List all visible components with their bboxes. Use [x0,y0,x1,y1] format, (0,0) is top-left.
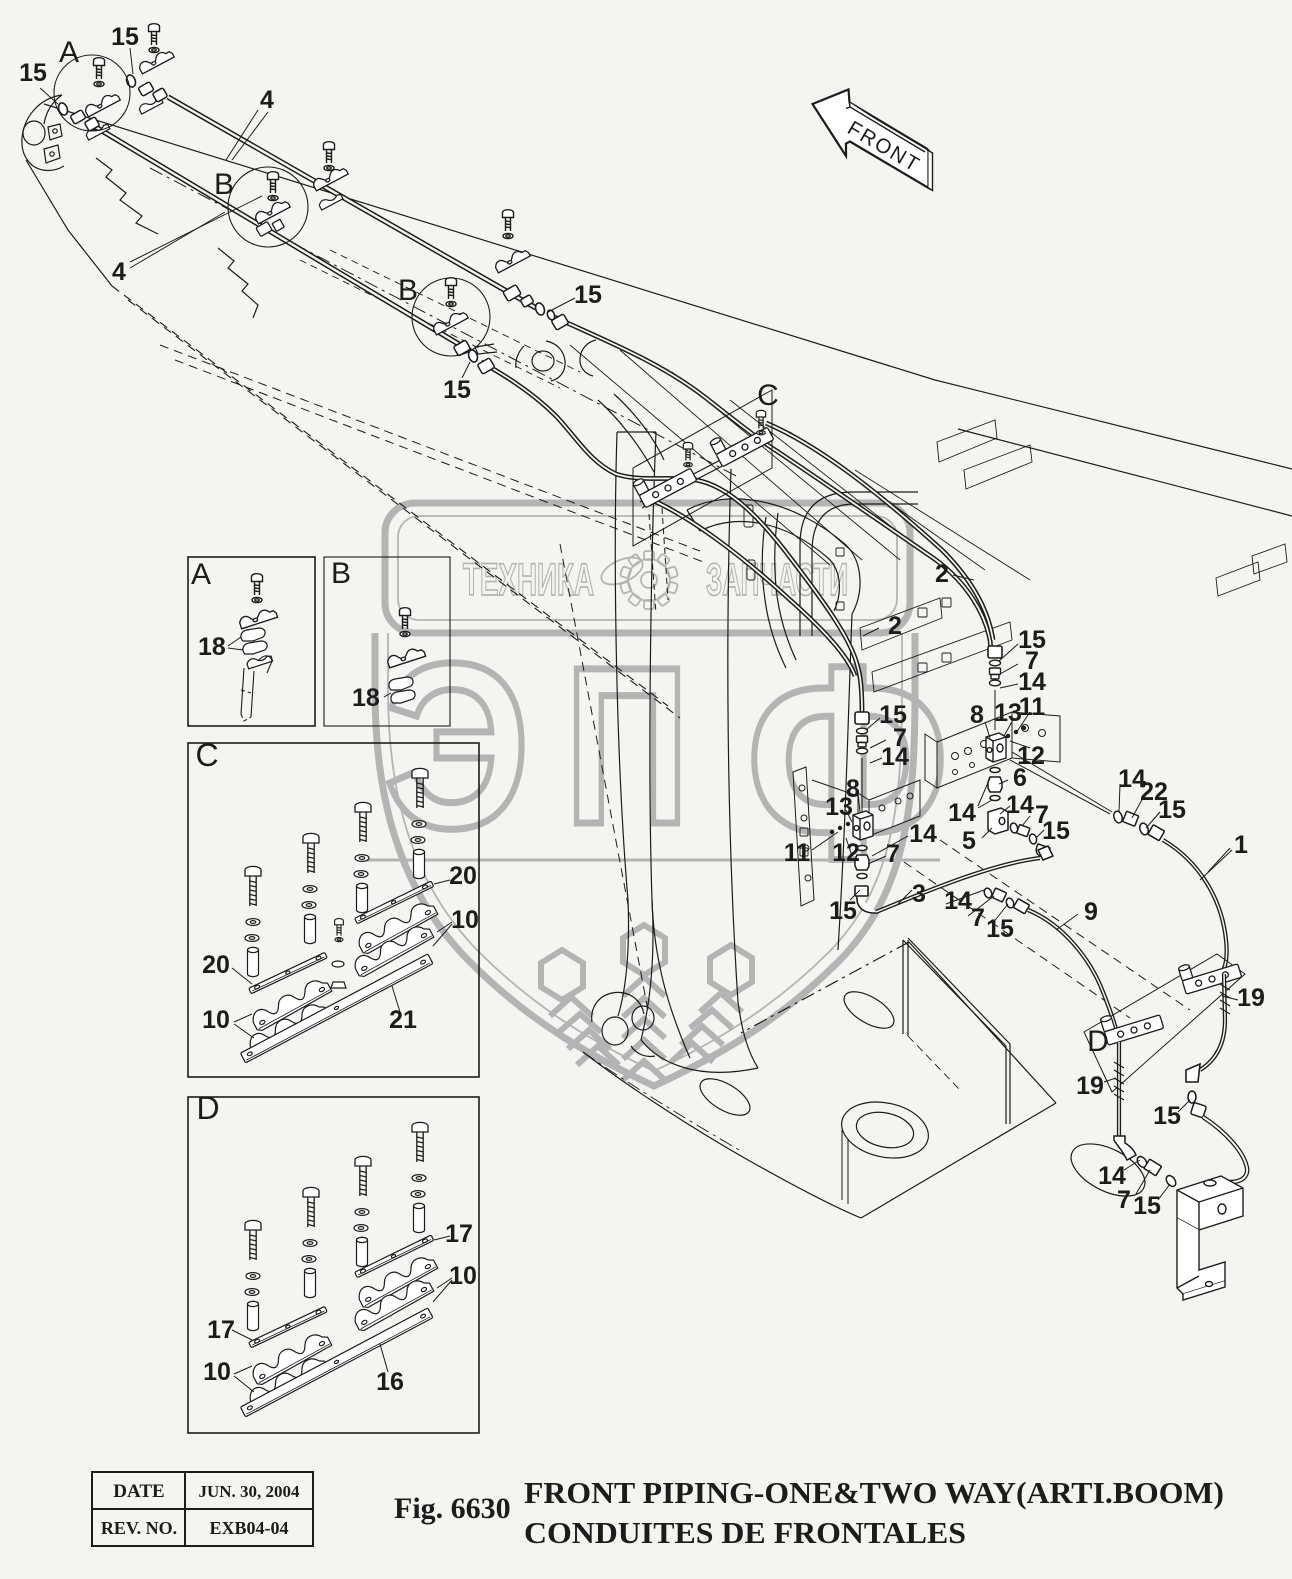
svg-text:13: 13 [994,699,1022,727]
svg-text:14: 14 [1018,668,1046,696]
svg-text:B: B [398,274,418,307]
svg-text:15: 15 [574,281,602,309]
svg-text:14: 14 [909,820,937,848]
svg-text:12: 12 [832,839,860,867]
svg-text:14: 14 [881,743,909,771]
svg-text:15: 15 [829,897,857,925]
svg-text:B: B [214,168,234,201]
svg-text:2: 2 [935,560,949,588]
svg-text:ТЕХНИКА: ТЕХНИКА [463,554,594,605]
svg-text:15: 15 [1133,1192,1161,1220]
svg-text:5: 5 [962,827,976,855]
svg-text:B: B [331,557,351,590]
svg-text:10: 10 [449,1262,477,1290]
svg-text:4: 4 [112,258,126,286]
svg-text:20: 20 [202,951,230,979]
svg-text:D: D [196,1090,219,1126]
svg-text:11: 11 [1019,693,1046,721]
svg-text:2: 2 [888,612,902,640]
svg-text:D: D [1087,1025,1109,1058]
svg-text:10: 10 [451,906,479,934]
svg-text:18: 18 [198,633,226,661]
svg-text:REV. NO.: REV. NO. [101,1518,177,1538]
svg-text:19: 19 [1076,1072,1104,1100]
svg-text:A: A [191,558,211,591]
svg-text:A: A [59,36,79,69]
svg-text:4: 4 [260,86,274,114]
svg-text:Э: Э [384,614,530,877]
svg-text:1: 1 [1234,831,1248,859]
svg-text:C: C [757,379,779,412]
svg-text:7: 7 [886,840,900,868]
svg-text:10: 10 [202,1006,230,1034]
svg-text:21: 21 [389,1006,417,1034]
svg-text:15: 15 [1153,1102,1181,1130]
svg-text:DATE: DATE [113,1481,164,1502]
svg-text:18: 18 [352,684,380,712]
svg-text:11: 11 [784,839,811,867]
svg-text:C: C [195,737,218,773]
svg-text:CONDUITES DE FRONTALES: CONDUITES DE FRONTALES [524,1515,966,1550]
svg-text:14: 14 [944,887,972,915]
svg-text:П: П [565,621,689,871]
svg-text:14: 14 [948,799,976,827]
svg-text:20: 20 [449,862,477,890]
svg-text:13: 13 [825,793,853,821]
svg-text:17: 17 [207,1316,235,1344]
svg-text:15: 15 [443,376,471,404]
svg-text:8: 8 [970,701,984,729]
svg-text:6: 6 [1013,764,1027,792]
svg-text:15: 15 [986,915,1014,943]
svg-text:7: 7 [1117,1186,1131,1214]
svg-text:FRONT PIPING-ONE&TWO WAY(ARTI.: FRONT PIPING-ONE&TWO WAY(ARTI.BOOM) [524,1475,1224,1510]
svg-text:15: 15 [111,23,139,51]
svg-text:15: 15 [19,59,47,87]
svg-text:7: 7 [971,904,985,932]
svg-text:16: 16 [376,1368,404,1396]
svg-text:19: 19 [1237,984,1265,1012]
svg-text:9: 9 [1084,898,1098,926]
svg-text:15: 15 [1158,796,1186,824]
svg-text:17: 17 [445,1220,473,1248]
svg-text:JUN. 30, 2004: JUN. 30, 2004 [198,1482,300,1501]
svg-text:3: 3 [912,880,926,908]
svg-text:14: 14 [1006,791,1034,819]
svg-text:Fig. 6630: Fig. 6630 [394,1492,511,1525]
svg-text:10: 10 [203,1358,231,1386]
svg-text:EXB04-04: EXB04-04 [209,1518,288,1538]
svg-text:15: 15 [1042,817,1070,845]
